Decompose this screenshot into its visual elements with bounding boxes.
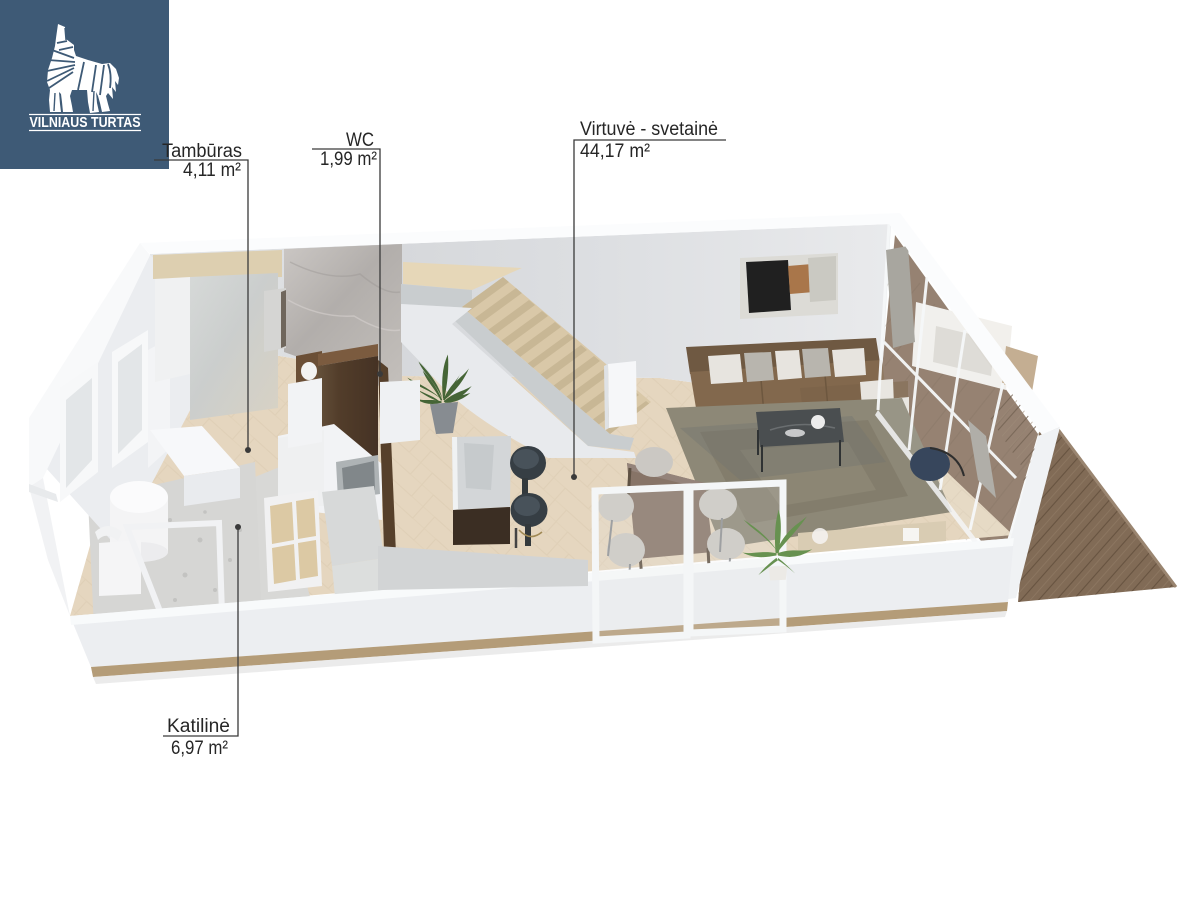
svg-text:1,99 m²: 1,99 m² <box>320 149 377 170</box>
svg-text:Virtuvė - svetainė: Virtuvė - svetainė <box>580 119 718 140</box>
svg-text:Tambūras: Tambūras <box>162 141 242 162</box>
svg-text:Katilinė: Katilinė <box>167 716 230 737</box>
svg-text:44,17 m²: 44,17 m² <box>580 141 650 162</box>
svg-text:VILNIAUS TURTAS: VILNIAUS TURTAS <box>30 115 141 131</box>
svg-text:6,97 m²: 6,97 m² <box>171 738 228 759</box>
svg-text:WC: WC <box>346 130 374 151</box>
svg-text:4,11 m²: 4,11 m² <box>183 160 241 181</box>
